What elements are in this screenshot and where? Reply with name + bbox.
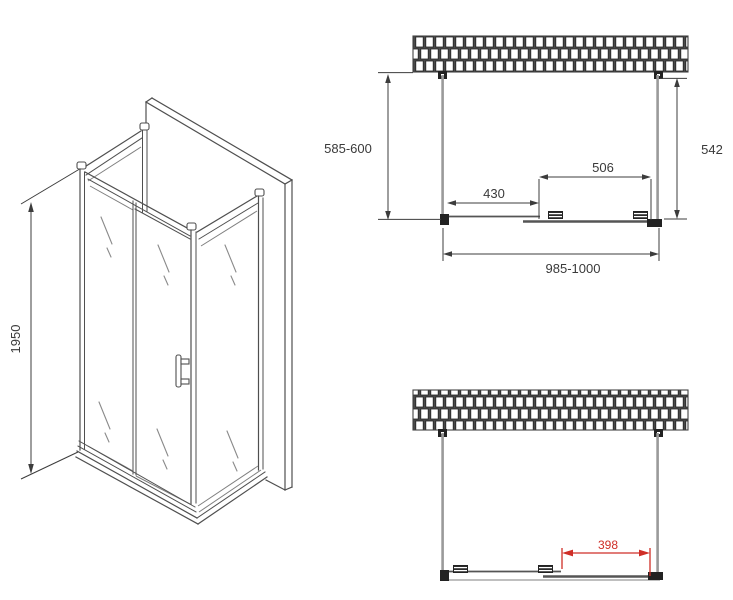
corner-fitting-left: [440, 570, 449, 581]
door-roller: [548, 211, 563, 219]
inner-depth-dimension: 542: [660, 78, 723, 219]
door-roller: [453, 565, 468, 573]
isometric-view: 1950: [8, 98, 292, 524]
wall-hatch-band: [413, 390, 688, 430]
iso-height-dimension: 1950: [8, 167, 83, 479]
plan-door-rail: [440, 211, 662, 227]
arrow-down-icon: [28, 464, 34, 474]
door-offset-dimension-label: 430: [483, 186, 505, 201]
opening-dimension: 398: [562, 538, 650, 576]
right-side-panel: [197, 189, 264, 512]
inner-depth-dimension-label: 542: [701, 142, 723, 157]
plan-view: 585-600 542 506 430: [324, 36, 723, 276]
glass-shine-marks: [99, 217, 238, 471]
wall-panel: [146, 98, 292, 490]
front-view: 398: [413, 390, 688, 581]
back-left-post-cap: [140, 123, 149, 130]
opening-dimension-label: 398: [598, 538, 618, 552]
front-right-post-cap: [187, 223, 196, 230]
depth-dimension-label: 585-600: [324, 141, 372, 156]
corner-fitting-left: [440, 214, 449, 225]
front-left-post-cap: [77, 162, 86, 169]
shower-tray: [76, 441, 267, 524]
depth-dimension: 585-600: [324, 73, 441, 220]
door-roller: [538, 565, 553, 573]
width-dimension-label: 985-1000: [546, 261, 601, 276]
technical-drawing: 1950: [0, 0, 733, 600]
wall-hatch-band: [413, 36, 688, 72]
door-offset-dimension: 430: [447, 186, 539, 206]
door-roller: [633, 211, 648, 219]
back-right-post-cap: [255, 189, 264, 196]
width-dimension: 985-1000: [443, 228, 659, 276]
drawing-svg: 1950: [0, 0, 733, 600]
left-side-panel: [77, 123, 149, 450]
front-door-rail: [440, 565, 663, 581]
corner-fitting-right: [647, 219, 662, 227]
door-width-dimension-label: 506: [592, 160, 614, 175]
arrow-up-icon: [28, 202, 34, 212]
height-dimension-label: 1950: [8, 325, 23, 354]
door-handle-icon: [176, 355, 189, 387]
